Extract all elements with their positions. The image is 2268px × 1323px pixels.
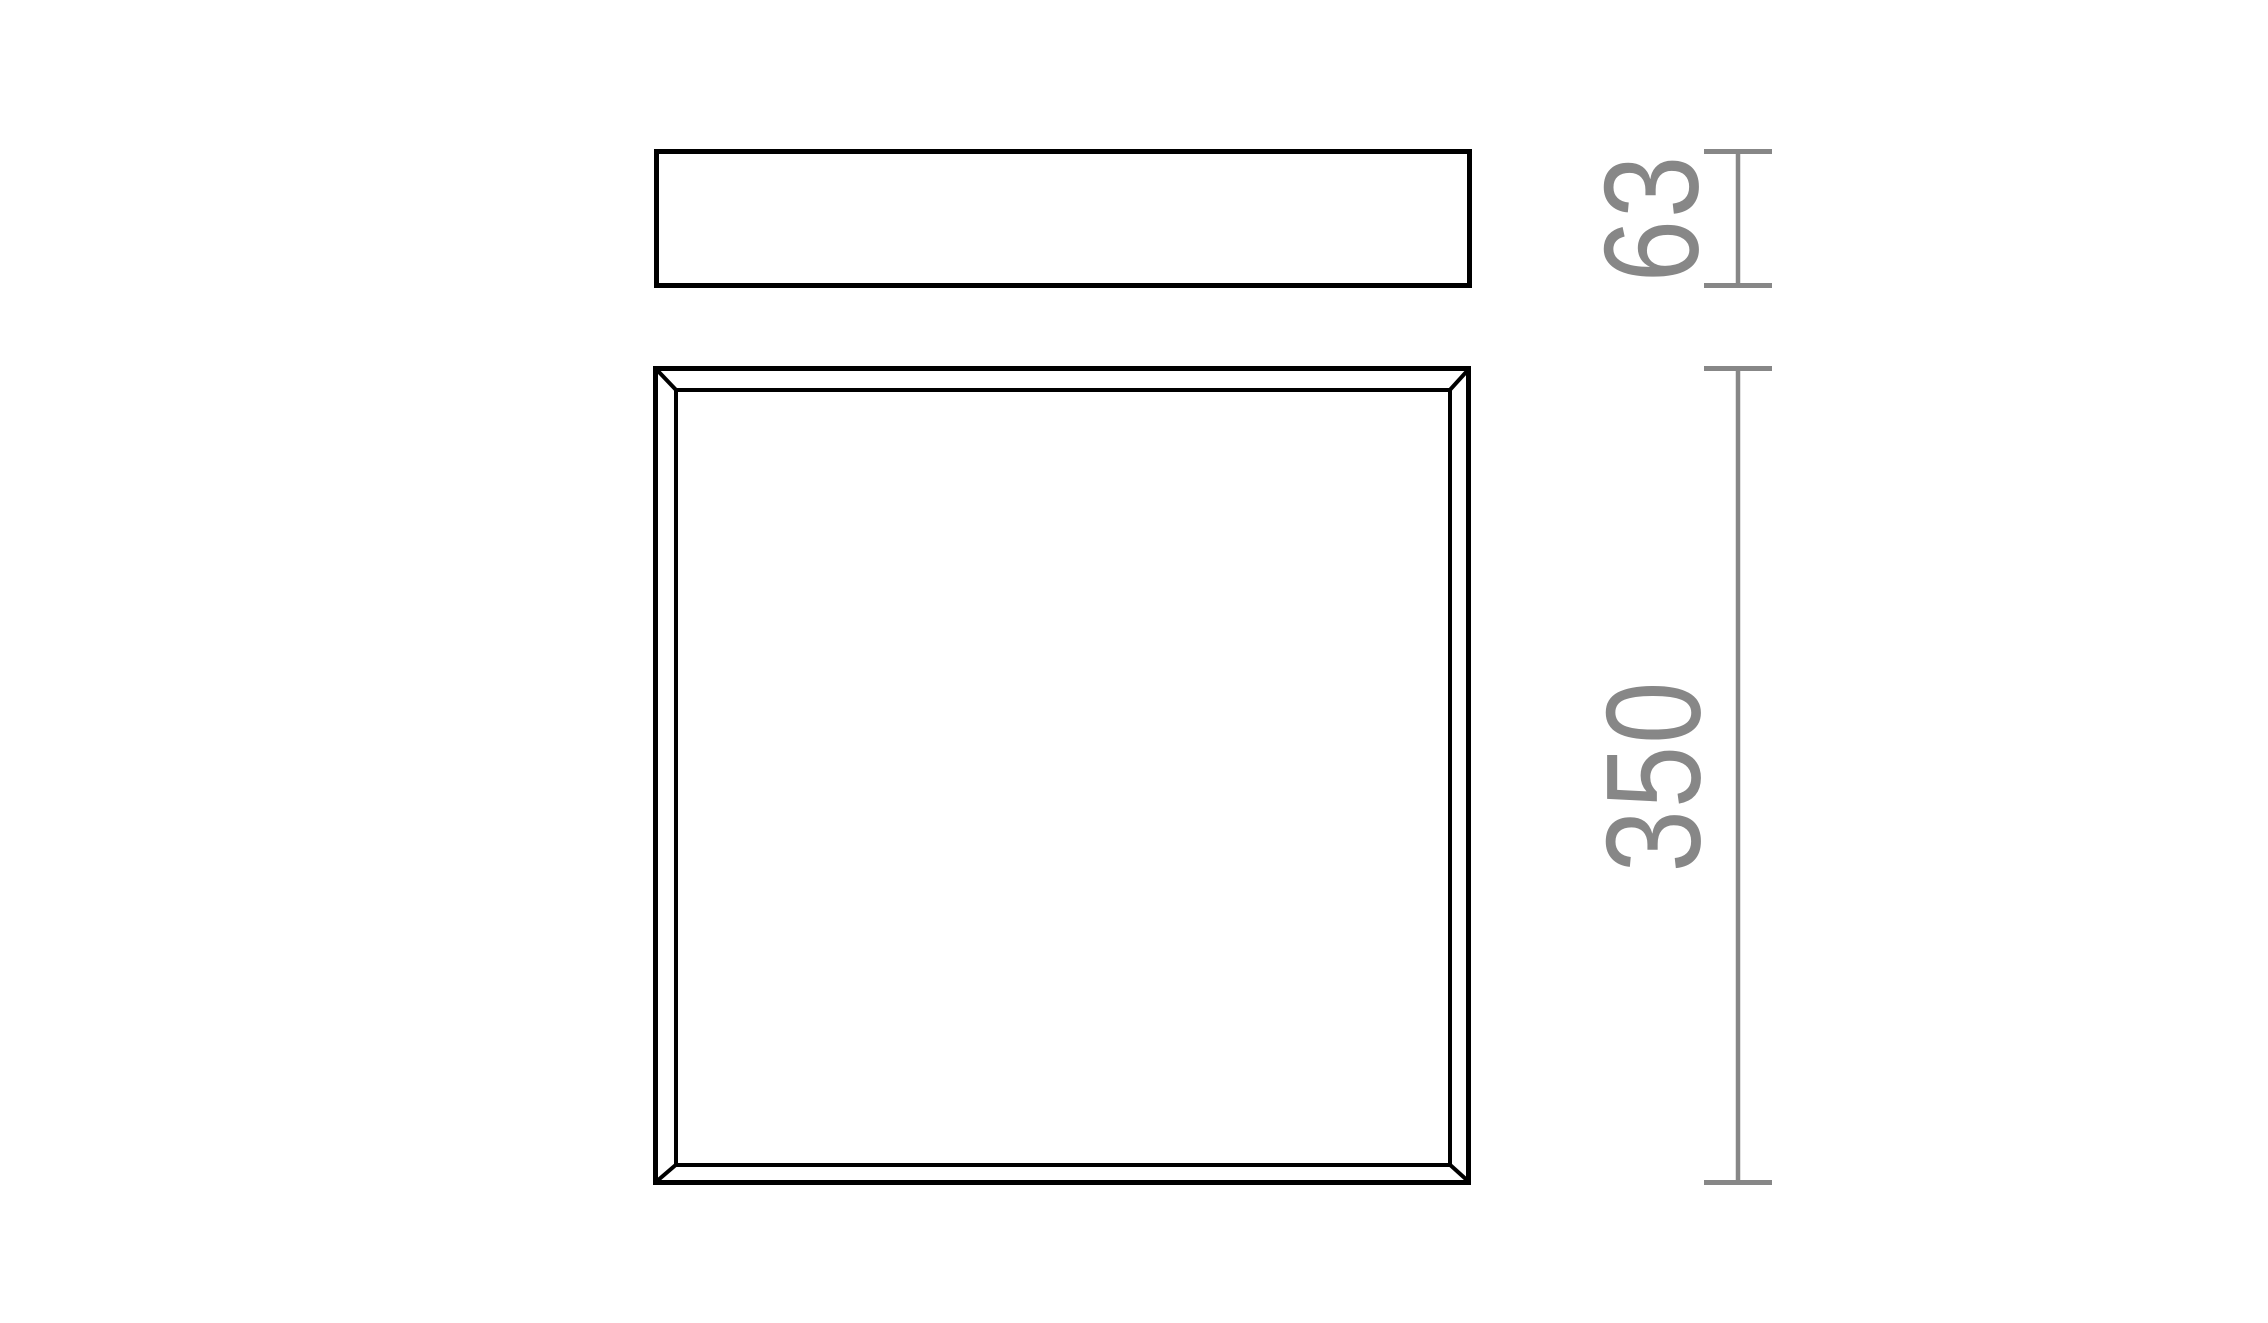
height-dimension-label: 63 (1585, 154, 1719, 283)
side-view-outline (657, 152, 1470, 286)
drawing-canvas (0, 0, 2268, 1323)
dimension-drawing-page: 63 350 (0, 0, 2268, 1323)
size-dimension-label: 350 (1587, 680, 1721, 873)
plan-view-outer-frame (656, 369, 1469, 1183)
